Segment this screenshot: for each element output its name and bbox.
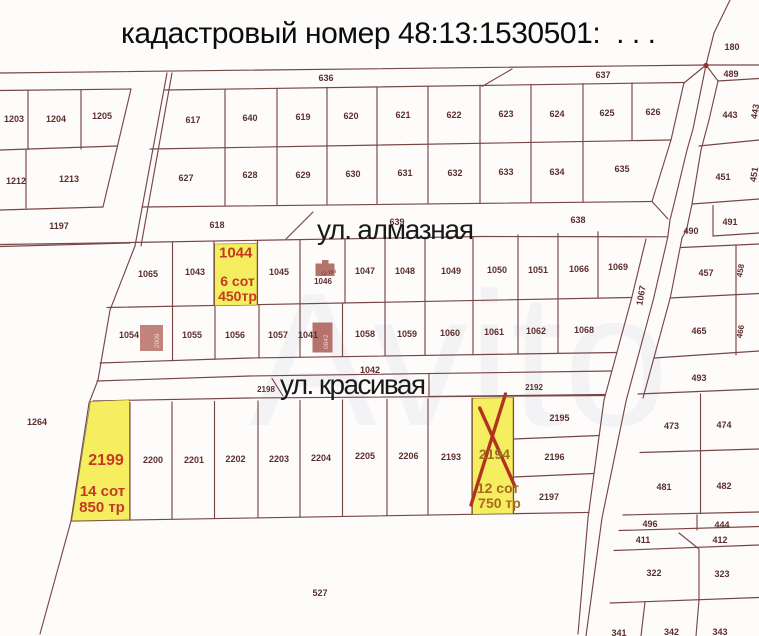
svg-text:2194: 2194: [479, 446, 510, 462]
svg-text:1264: 1264: [27, 417, 47, 427]
svg-text:640: 640: [242, 113, 257, 123]
svg-text:1204: 1204: [46, 114, 66, 124]
svg-text:1061: 1061: [484, 327, 504, 337]
svg-text:1062: 1062: [526, 326, 546, 336]
svg-text:628: 628: [242, 170, 257, 180]
svg-text:180: 180: [724, 42, 739, 52]
svg-text:ул. алмазная: ул. алмазная: [317, 214, 474, 245]
svg-text:1069: 1069: [608, 262, 628, 272]
svg-text:1046: 1046: [314, 277, 332, 286]
svg-text:2195: 2195: [549, 413, 569, 423]
svg-text:634: 634: [549, 167, 564, 177]
svg-text:1057: 1057: [268, 330, 288, 340]
svg-text:323: 323: [714, 569, 729, 579]
svg-text:632: 632: [447, 168, 462, 178]
svg-text:2206: 2206: [398, 451, 418, 461]
svg-text:633: 633: [498, 167, 513, 177]
svg-text:635: 635: [614, 164, 629, 174]
svg-text:457: 457: [698, 268, 713, 278]
svg-text:450тр: 450тр: [218, 288, 257, 304]
svg-text:1212: 1212: [6, 176, 26, 186]
svg-text:617: 617: [185, 115, 200, 125]
svg-text:626: 626: [645, 107, 660, 117]
svg-text:443: 443: [749, 103, 759, 120]
svg-text:2200: 2200: [143, 455, 163, 465]
svg-text:624: 624: [549, 109, 564, 119]
svg-text:6 сот: 6 сот: [220, 273, 255, 289]
svg-text:474: 474: [716, 420, 731, 430]
svg-text:481: 481: [656, 482, 671, 492]
svg-text:636: 636: [318, 73, 333, 83]
svg-text:1197: 1197: [49, 221, 69, 231]
svg-text:1049: 1049: [441, 266, 461, 276]
svg-text:1051: 1051: [528, 265, 548, 275]
svg-text:2202: 2202: [225, 454, 245, 464]
svg-text:1044: 1044: [219, 245, 253, 262]
svg-text:619: 619: [295, 112, 310, 122]
svg-text:2197: 2197: [539, 492, 559, 502]
svg-text:473: 473: [664, 421, 679, 431]
svg-text:2201: 2201: [184, 455, 204, 465]
svg-text:638: 638: [570, 215, 585, 225]
svg-text:444: 444: [714, 520, 729, 530]
svg-text:1055: 1055: [182, 330, 202, 340]
svg-text:482: 482: [716, 481, 731, 491]
svg-text:491: 491: [722, 217, 737, 227]
svg-text:1043: 1043: [185, 267, 205, 277]
svg-text:1068: 1068: [574, 325, 594, 335]
svg-text:1059: 1059: [397, 329, 417, 339]
svg-text:451: 451: [748, 166, 759, 183]
svg-text:2205: 2205: [355, 451, 375, 461]
svg-text:630: 630: [345, 169, 360, 179]
svg-text:1047: 1047: [355, 266, 375, 276]
svg-text:618: 618: [209, 220, 224, 230]
svg-text:1065: 1065: [138, 269, 158, 279]
svg-text:850 тр: 850 тр: [79, 499, 125, 516]
svg-text:750 тр: 750 тр: [478, 495, 521, 511]
svg-text:1205: 1205: [92, 111, 112, 121]
svg-text:ул. красивая: ул. красивая: [280, 369, 426, 400]
svg-text:2203: 2203: [269, 454, 289, 464]
svg-text:342: 342: [664, 627, 679, 636]
svg-text:кадастровый номер 48:13:153050: кадастровый номер 48:13:1530501: . . .: [121, 17, 656, 50]
svg-text:1058: 1058: [355, 329, 375, 339]
svg-text:1050: 1050: [487, 265, 507, 275]
svg-text:622: 622: [446, 110, 461, 120]
svg-text:1045: 1045: [269, 267, 289, 277]
svg-text:451: 451: [715, 172, 730, 182]
svg-text:14 сот: 14 сот: [80, 483, 125, 500]
svg-text:0842: 0842: [323, 334, 330, 349]
svg-text:412: 412: [712, 535, 727, 545]
svg-text:2196: 2196: [544, 452, 564, 462]
svg-text:620: 620: [343, 111, 358, 121]
svg-text:625: 625: [599, 108, 614, 118]
svg-text:322: 322: [646, 568, 661, 578]
svg-text:490: 490: [683, 226, 698, 236]
svg-text:493: 493: [691, 373, 706, 383]
svg-text:1203: 1203: [4, 114, 24, 124]
svg-text:2192: 2192: [525, 383, 543, 392]
svg-text:411: 411: [636, 535, 651, 545]
svg-text:527: 527: [312, 588, 327, 598]
svg-text:443: 443: [722, 110, 737, 120]
svg-text:12 сот: 12 сот: [477, 480, 519, 496]
svg-text:631: 631: [397, 168, 412, 178]
svg-text:343: 343: [712, 627, 727, 636]
svg-text:2199: 2199: [88, 452, 124, 469]
svg-text:489: 489: [723, 69, 738, 79]
svg-text:496: 496: [642, 519, 657, 529]
svg-text:1048: 1048: [395, 266, 415, 276]
svg-text:627: 627: [178, 173, 193, 183]
svg-text:1060: 1060: [440, 328, 460, 338]
svg-text:1054: 1054: [119, 330, 139, 340]
svg-text:2193: 2193: [441, 452, 461, 462]
svg-text:629: 629: [295, 170, 310, 180]
svg-text:623: 623: [498, 109, 513, 119]
svg-text:2198: 2198: [257, 385, 275, 394]
svg-text:1066: 1066: [569, 264, 589, 274]
svg-text:637: 637: [595, 70, 610, 80]
svg-text:2204: 2204: [311, 453, 331, 463]
svg-text:2009: 2009: [154, 333, 161, 348]
svg-text:Avito: Avito: [250, 254, 669, 466]
svg-text:621: 621: [395, 110, 410, 120]
svg-text:1056: 1056: [225, 330, 245, 340]
svg-text:465: 465: [691, 326, 706, 336]
svg-text:341: 341: [611, 628, 626, 636]
svg-text:1213: 1213: [59, 174, 79, 184]
svg-text:1041: 1041: [298, 330, 318, 340]
